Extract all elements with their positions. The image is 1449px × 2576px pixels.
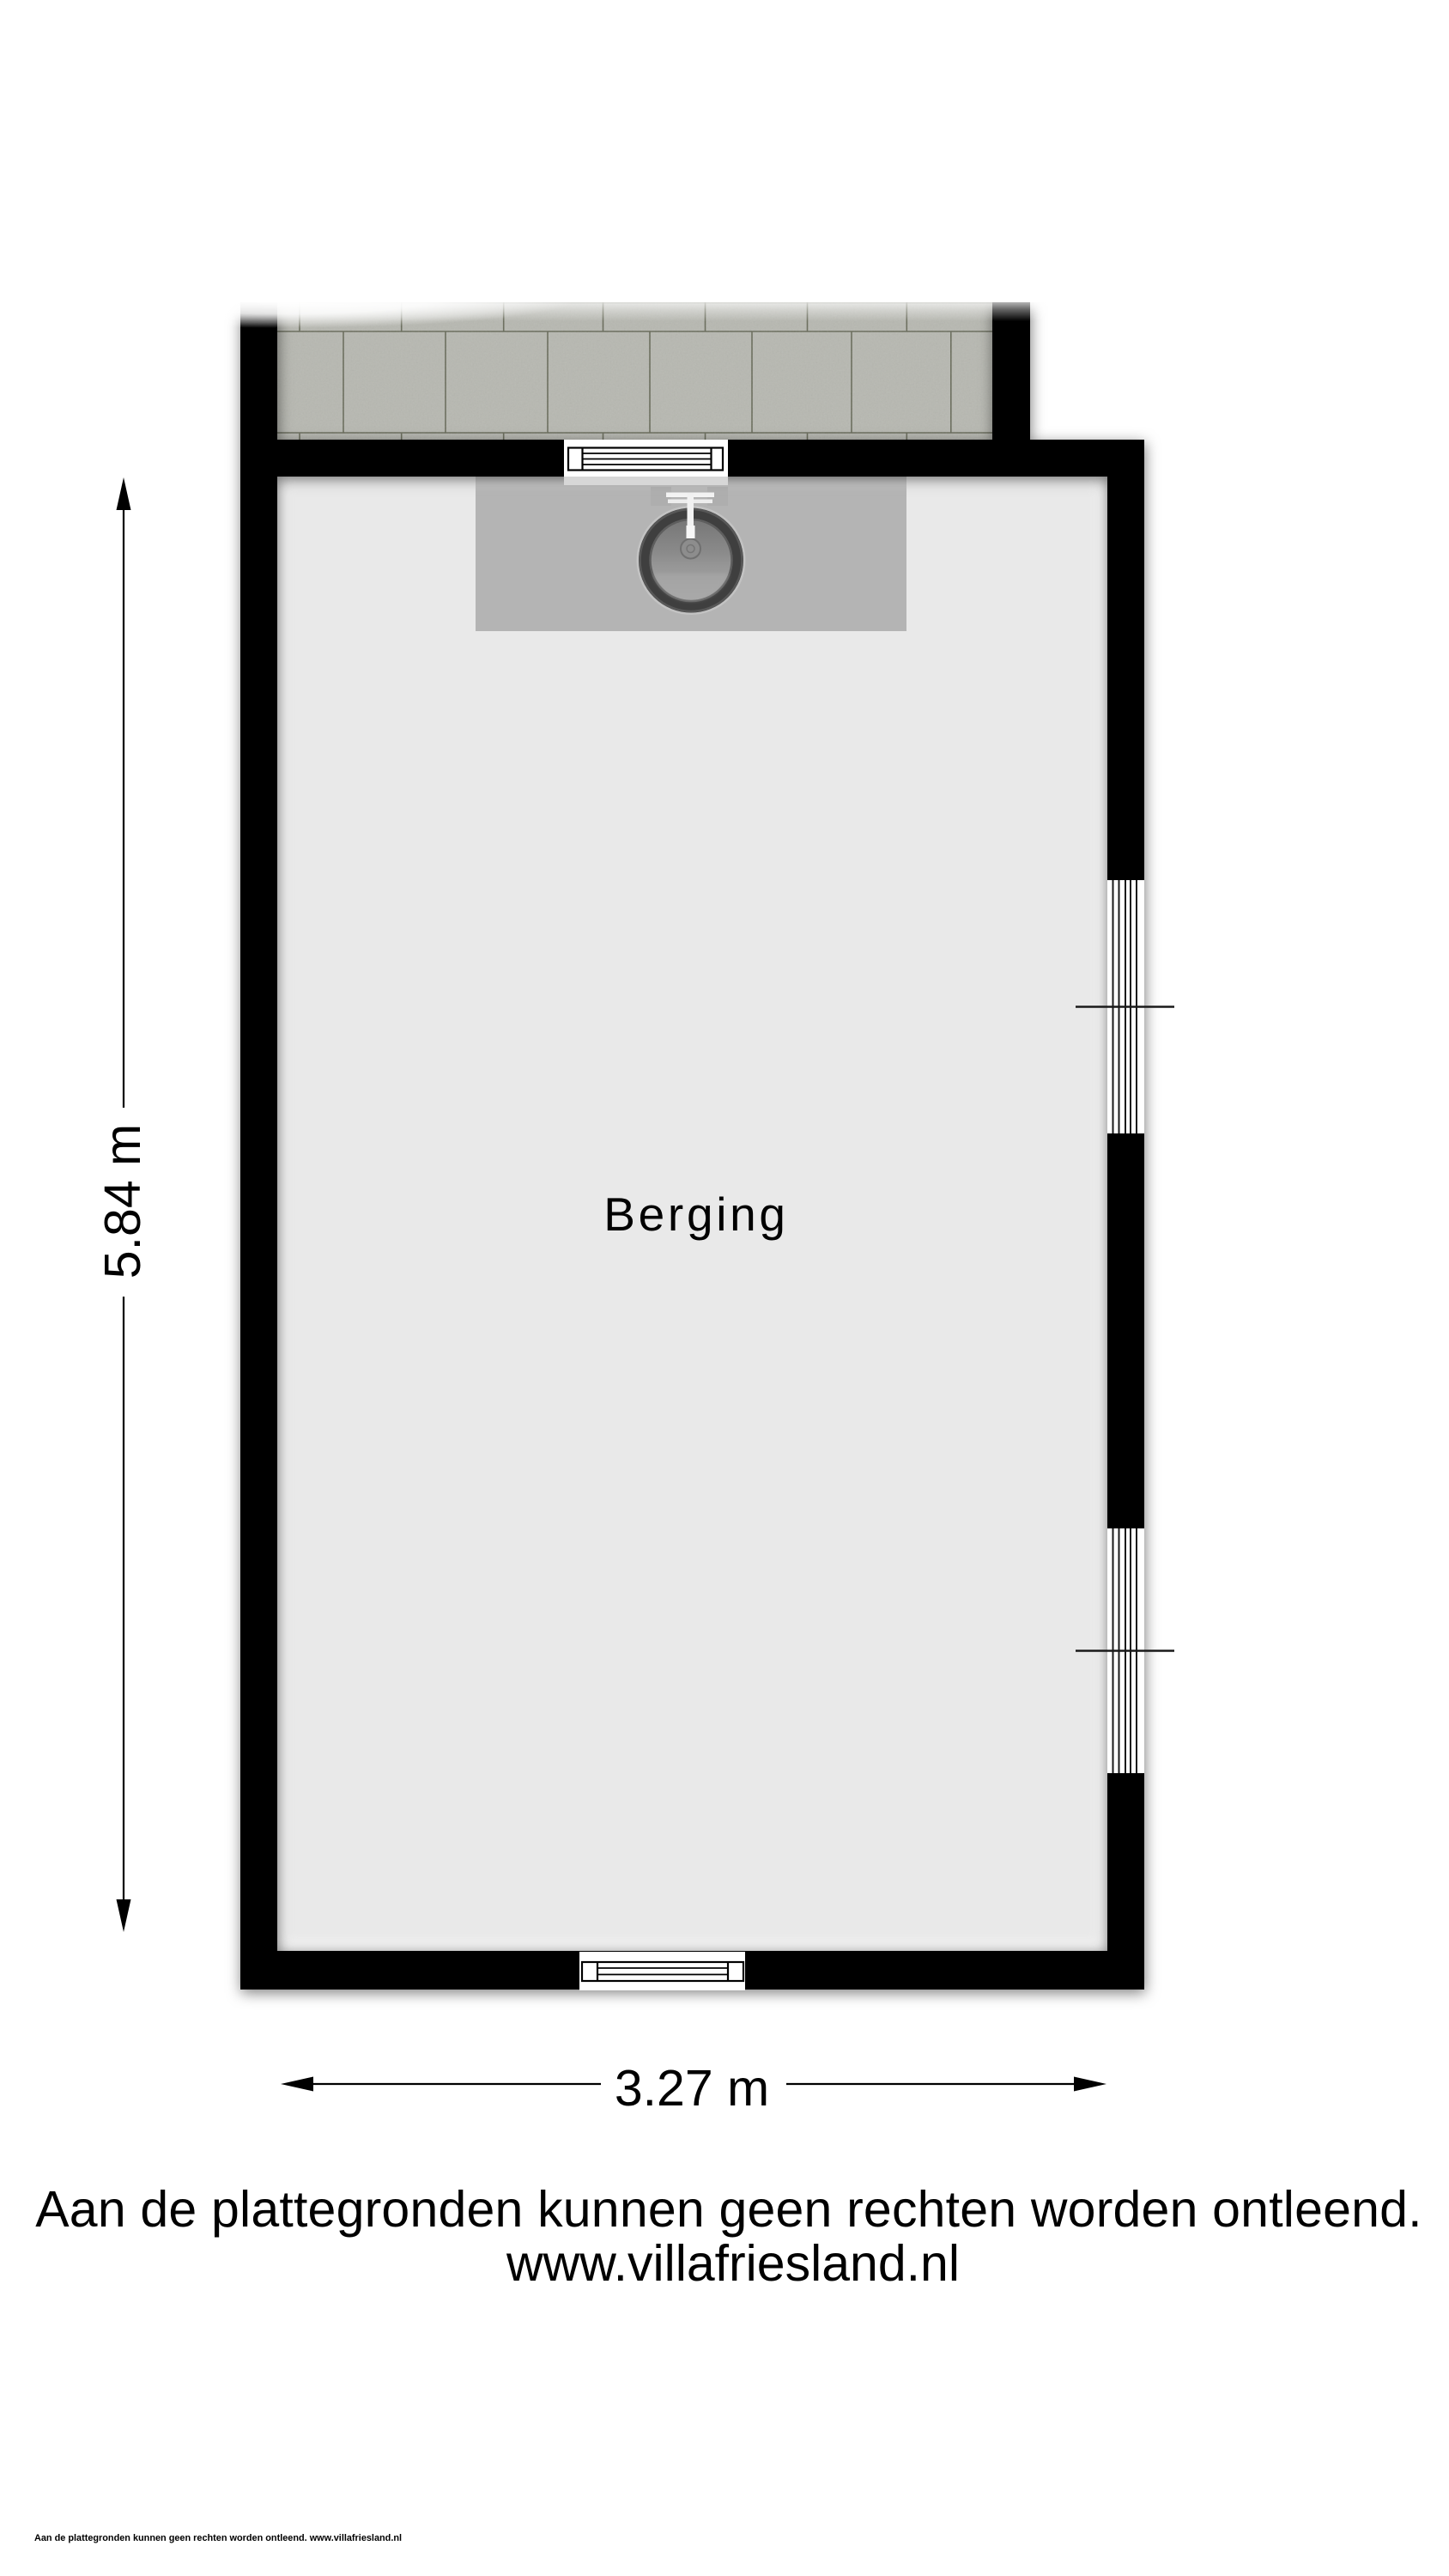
svg-text:Aan de plattegronden kunnen ge: Aan de plattegronden kunnen geen rechten…: [34, 2533, 402, 2543]
svg-text:Aan de plattegronden kunnen ge: Aan de plattegronden kunnen geen rechten…: [35, 2181, 1422, 2238]
svg-text:5.84 m: 5.84 m: [94, 1124, 151, 1279]
svg-text:www.villafriesland.nl: www.villafriesland.nl: [506, 2235, 960, 2292]
svg-text:Berging: Berging: [603, 1188, 788, 1241]
svg-text:3.27 m: 3.27 m: [615, 2060, 769, 2117]
